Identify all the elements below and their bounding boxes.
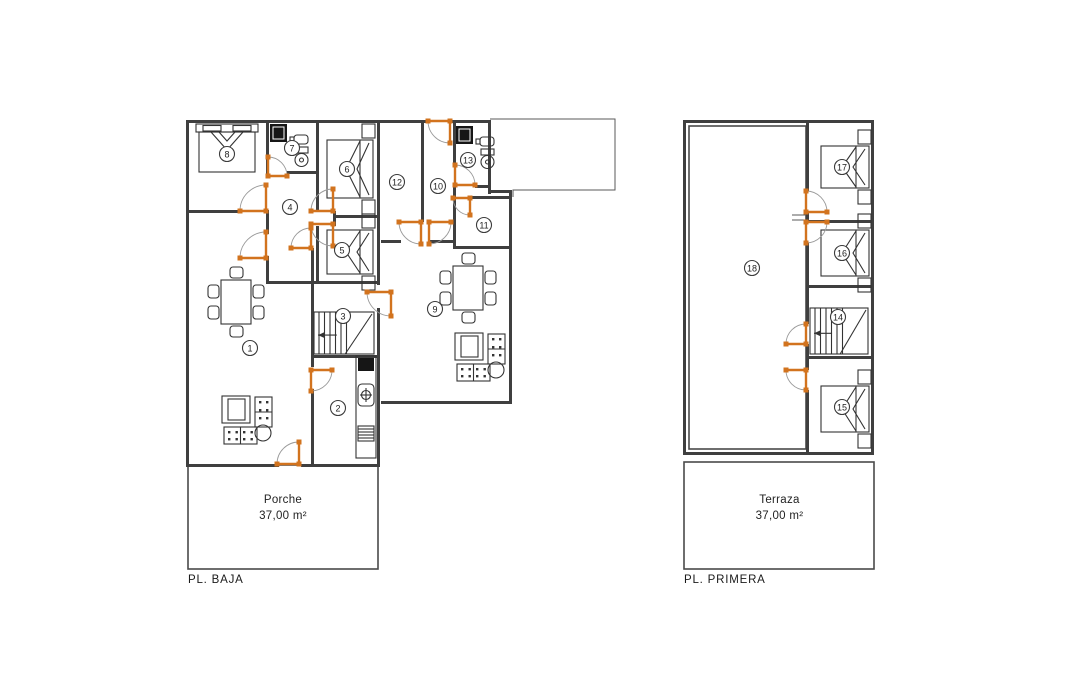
door-hinge-icon: [468, 196, 473, 201]
room-number-18: 18: [747, 264, 757, 274]
door-hinge-icon: [331, 209, 336, 214]
wall: [683, 120, 686, 455]
door-hinge-icon: [426, 119, 431, 124]
wall: [377, 308, 380, 464]
wall: [806, 356, 871, 359]
door-hinge-icon: [330, 368, 335, 373]
door-swing-arc: [311, 189, 333, 211]
door-hinge-icon: [285, 174, 290, 179]
door-hinge-icon: [453, 163, 458, 168]
room-number-8: 8: [224, 150, 229, 160]
door-hinge-icon: [331, 222, 336, 227]
kitchen-counter: [356, 356, 376, 458]
wall: [806, 390, 809, 452]
door-hinge-icon: [804, 388, 809, 393]
wall: [287, 171, 318, 174]
porch-title: Porche: [195, 492, 371, 508]
outdoor-area-outline: [689, 126, 806, 449]
chair: [253, 285, 264, 298]
door-hinge-icon: [449, 220, 454, 225]
door-hinge-icon: [264, 183, 269, 188]
door-hinge-icon: [825, 220, 830, 225]
chair: [440, 292, 451, 305]
chair: [462, 253, 475, 264]
porch-size: 37,00 m²: [195, 508, 371, 524]
door-hinge-icon: [289, 246, 294, 251]
door-hinge-icon: [264, 209, 269, 214]
wall: [186, 120, 429, 123]
door-swing-arc: [291, 228, 311, 248]
door-hinge-icon: [309, 246, 314, 251]
wall: [488, 120, 491, 194]
door-swing-arc: [268, 157, 287, 176]
wall: [311, 389, 314, 466]
wall: [806, 243, 809, 324]
wall: [316, 226, 319, 283]
door-hinge-icon: [468, 213, 473, 218]
door-hinge-icon: [297, 440, 302, 445]
door-hinge-icon: [427, 220, 432, 225]
room-number-10: 10: [433, 182, 443, 192]
door-hinge-icon: [427, 242, 432, 247]
plan-label-baja: PL. BAJA: [188, 574, 244, 586]
door-hinge-icon: [266, 174, 271, 179]
door-hinge-icon: [389, 314, 394, 319]
wall: [186, 464, 279, 467]
room-number-14: 14: [833, 313, 843, 323]
nightstand: [858, 370, 871, 384]
door-hinge-icon: [453, 183, 458, 188]
room-number-7: 7: [289, 144, 294, 154]
wall: [453, 246, 512, 249]
wall: [509, 192, 512, 404]
door-hinge-icon: [448, 141, 453, 146]
terrace-size: 37,00 m²: [692, 508, 867, 524]
chair: [208, 285, 219, 298]
room-number-5: 5: [339, 246, 344, 256]
door-hinge-icon: [419, 220, 424, 225]
door-swing-arc: [240, 185, 266, 211]
chair: [462, 312, 475, 323]
wall: [311, 248, 314, 283]
pillow: [233, 126, 251, 132]
wall: [453, 123, 456, 167]
door-hinge-icon: [804, 210, 809, 215]
toilet: [295, 154, 308, 167]
door-swing-arc: [455, 165, 475, 185]
door-hinge-icon: [804, 322, 809, 327]
door-hinge-icon: [804, 342, 809, 347]
tv-cabinet: [455, 333, 483, 360]
door-hinge-icon: [389, 290, 394, 295]
chair: [485, 271, 496, 284]
nightstand: [858, 190, 871, 204]
door-hinge-icon: [784, 368, 789, 373]
door-hinge-icon: [309, 368, 314, 373]
door-swing-arc: [311, 370, 332, 391]
annex-outline: [490, 119, 615, 197]
sink: [480, 137, 494, 146]
room-number-1: 1: [247, 344, 252, 354]
chair: [230, 267, 243, 278]
plan-label-primera: PL. PRIMERA: [684, 574, 766, 586]
door-hinge-icon: [275, 462, 280, 467]
toilet-tank: [481, 149, 494, 155]
tv-cabinet: [222, 396, 250, 423]
wall: [381, 401, 511, 404]
door-swing-arc: [428, 121, 450, 143]
wall: [266, 281, 314, 284]
wall: [316, 120, 319, 211]
door-hinge-icon: [266, 155, 271, 160]
room-number-12: 12: [392, 178, 402, 188]
floorplan-canvas: 123456789101112131415161718 Porche 37,00…: [0, 0, 1080, 689]
porch-area-label: Porche 37,00 m²: [195, 492, 371, 524]
nightstand: [362, 124, 375, 138]
door-hinge-icon: [264, 230, 269, 235]
wall: [381, 240, 401, 243]
wall: [333, 215, 379, 218]
door-hinge-icon: [825, 210, 830, 215]
door-hinge-icon: [309, 226, 314, 231]
door-swing-arc: [240, 232, 266, 258]
room-number-6: 6: [344, 165, 349, 175]
wall: [683, 452, 874, 455]
nightstand: [858, 434, 871, 448]
chair: [440, 271, 451, 284]
fridge: [358, 358, 374, 371]
chair: [230, 326, 243, 337]
door-hinge-icon: [473, 183, 478, 188]
chair: [253, 306, 264, 319]
door-hinge-icon: [309, 209, 314, 214]
chair: [208, 306, 219, 319]
door-hinge-icon: [448, 119, 453, 124]
door-hinge-icon: [397, 220, 402, 225]
terrace-title: Terraza: [692, 492, 867, 508]
door-swing-arc: [277, 442, 299, 464]
room-number-11: 11: [479, 221, 488, 231]
wall: [429, 240, 455, 243]
wall: [377, 120, 380, 285]
stove: [358, 426, 374, 441]
floorplan-svg: 123456789101112131415161718: [0, 0, 1080, 689]
wall: [186, 210, 242, 213]
door-hinge-icon: [238, 209, 243, 214]
pillow: [203, 126, 221, 132]
room-number-16: 16: [837, 249, 847, 259]
wall: [186, 120, 189, 467]
toilet: [481, 156, 494, 169]
door-hinge-icon: [784, 342, 789, 347]
room-number-2: 2: [335, 404, 340, 414]
wall: [683, 120, 874, 123]
door-hinge-icon: [297, 462, 302, 467]
room-number-9: 9: [432, 305, 437, 315]
door-hinge-icon: [331, 187, 336, 192]
wall: [806, 123, 809, 191]
dining-table: [453, 266, 483, 310]
door-swing-arc: [786, 324, 806, 344]
wall: [421, 123, 424, 222]
door-hinge-icon: [804, 368, 809, 373]
wall: [806, 285, 871, 288]
door-swing-arc: [311, 224, 333, 246]
door-swing-arc: [806, 222, 827, 243]
wall: [470, 196, 512, 199]
door-hinge-icon: [804, 220, 809, 225]
room-number-17: 17: [837, 163, 847, 173]
door-hinge-icon: [451, 196, 456, 201]
door-hinge-icon: [365, 290, 370, 295]
door-hinge-icon: [419, 242, 424, 247]
door-hinge-icon: [238, 256, 243, 261]
door-swing-arc: [786, 370, 806, 390]
room-number-3: 3: [340, 312, 345, 322]
wall: [450, 120, 491, 123]
door-swing-arc: [806, 191, 827, 212]
room-number-13: 13: [463, 156, 473, 166]
terrace-area-label: Terraza 37,00 m²: [692, 492, 867, 524]
wall: [312, 281, 380, 284]
door-hinge-icon: [804, 189, 809, 194]
nightstand: [858, 130, 871, 144]
door-hinge-icon: [264, 256, 269, 261]
dining-table: [221, 280, 251, 324]
nightstand: [362, 200, 375, 214]
door-swing-arc: [399, 222, 421, 244]
door-hinge-icon: [804, 241, 809, 246]
door-hinge-icon: [309, 389, 314, 394]
chair: [485, 292, 496, 305]
wall: [488, 190, 512, 193]
room-number-15: 15: [837, 403, 847, 413]
room-number-4: 4: [287, 203, 292, 213]
